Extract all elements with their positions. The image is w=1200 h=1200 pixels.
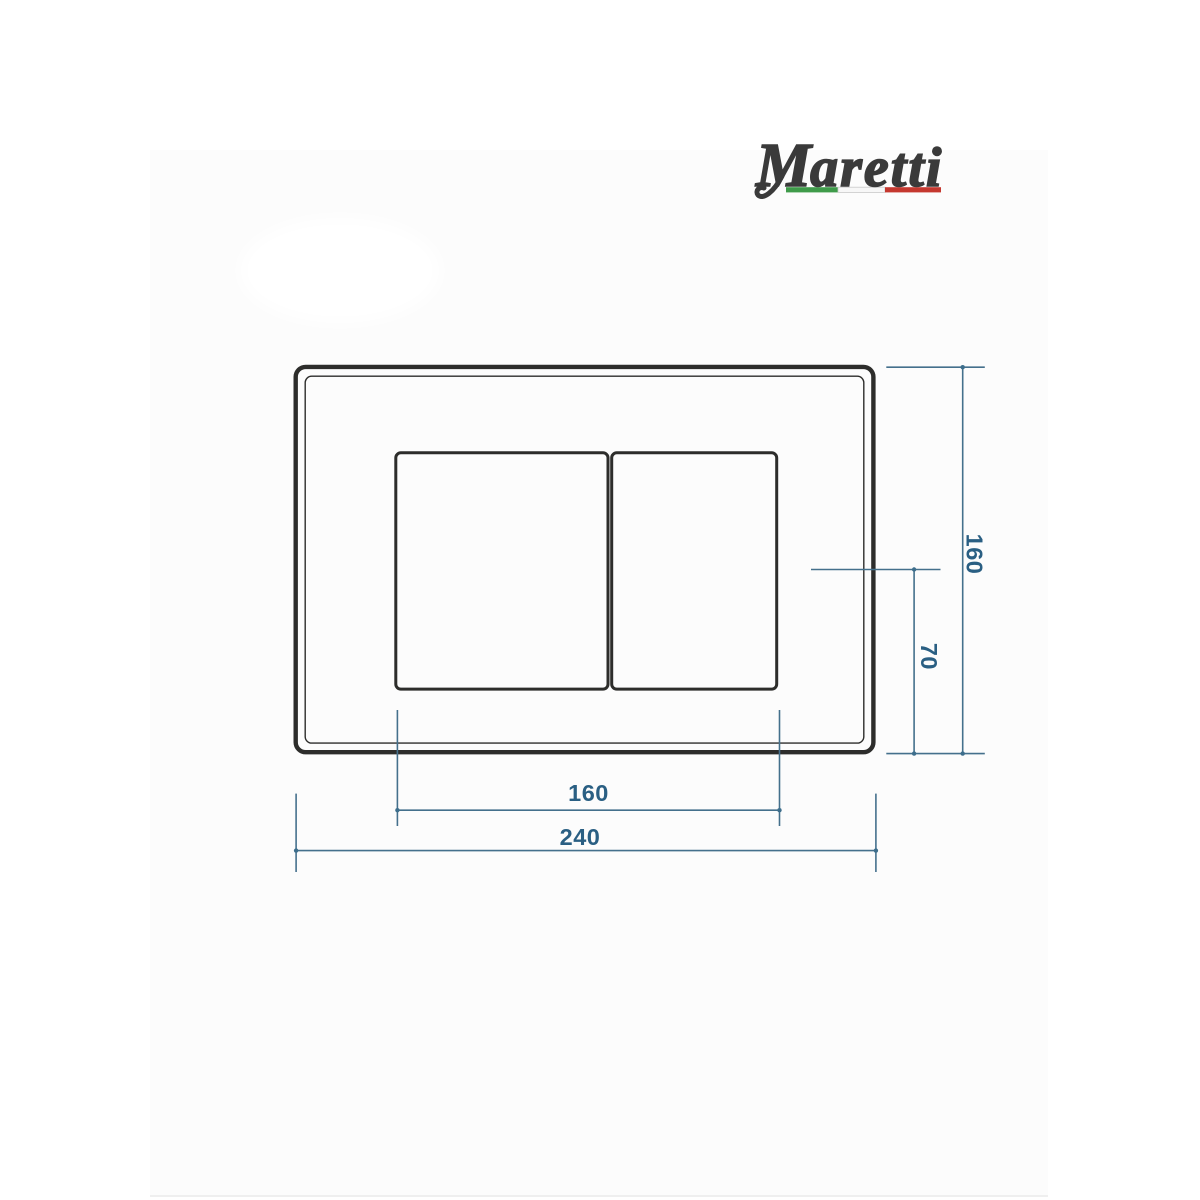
svg-text:160: 160 xyxy=(962,534,988,575)
svg-text:Maretti: Maretti xyxy=(755,132,943,200)
svg-text:160: 160 xyxy=(568,780,609,806)
svg-text:240: 240 xyxy=(560,824,601,850)
svg-text:70: 70 xyxy=(916,643,942,670)
